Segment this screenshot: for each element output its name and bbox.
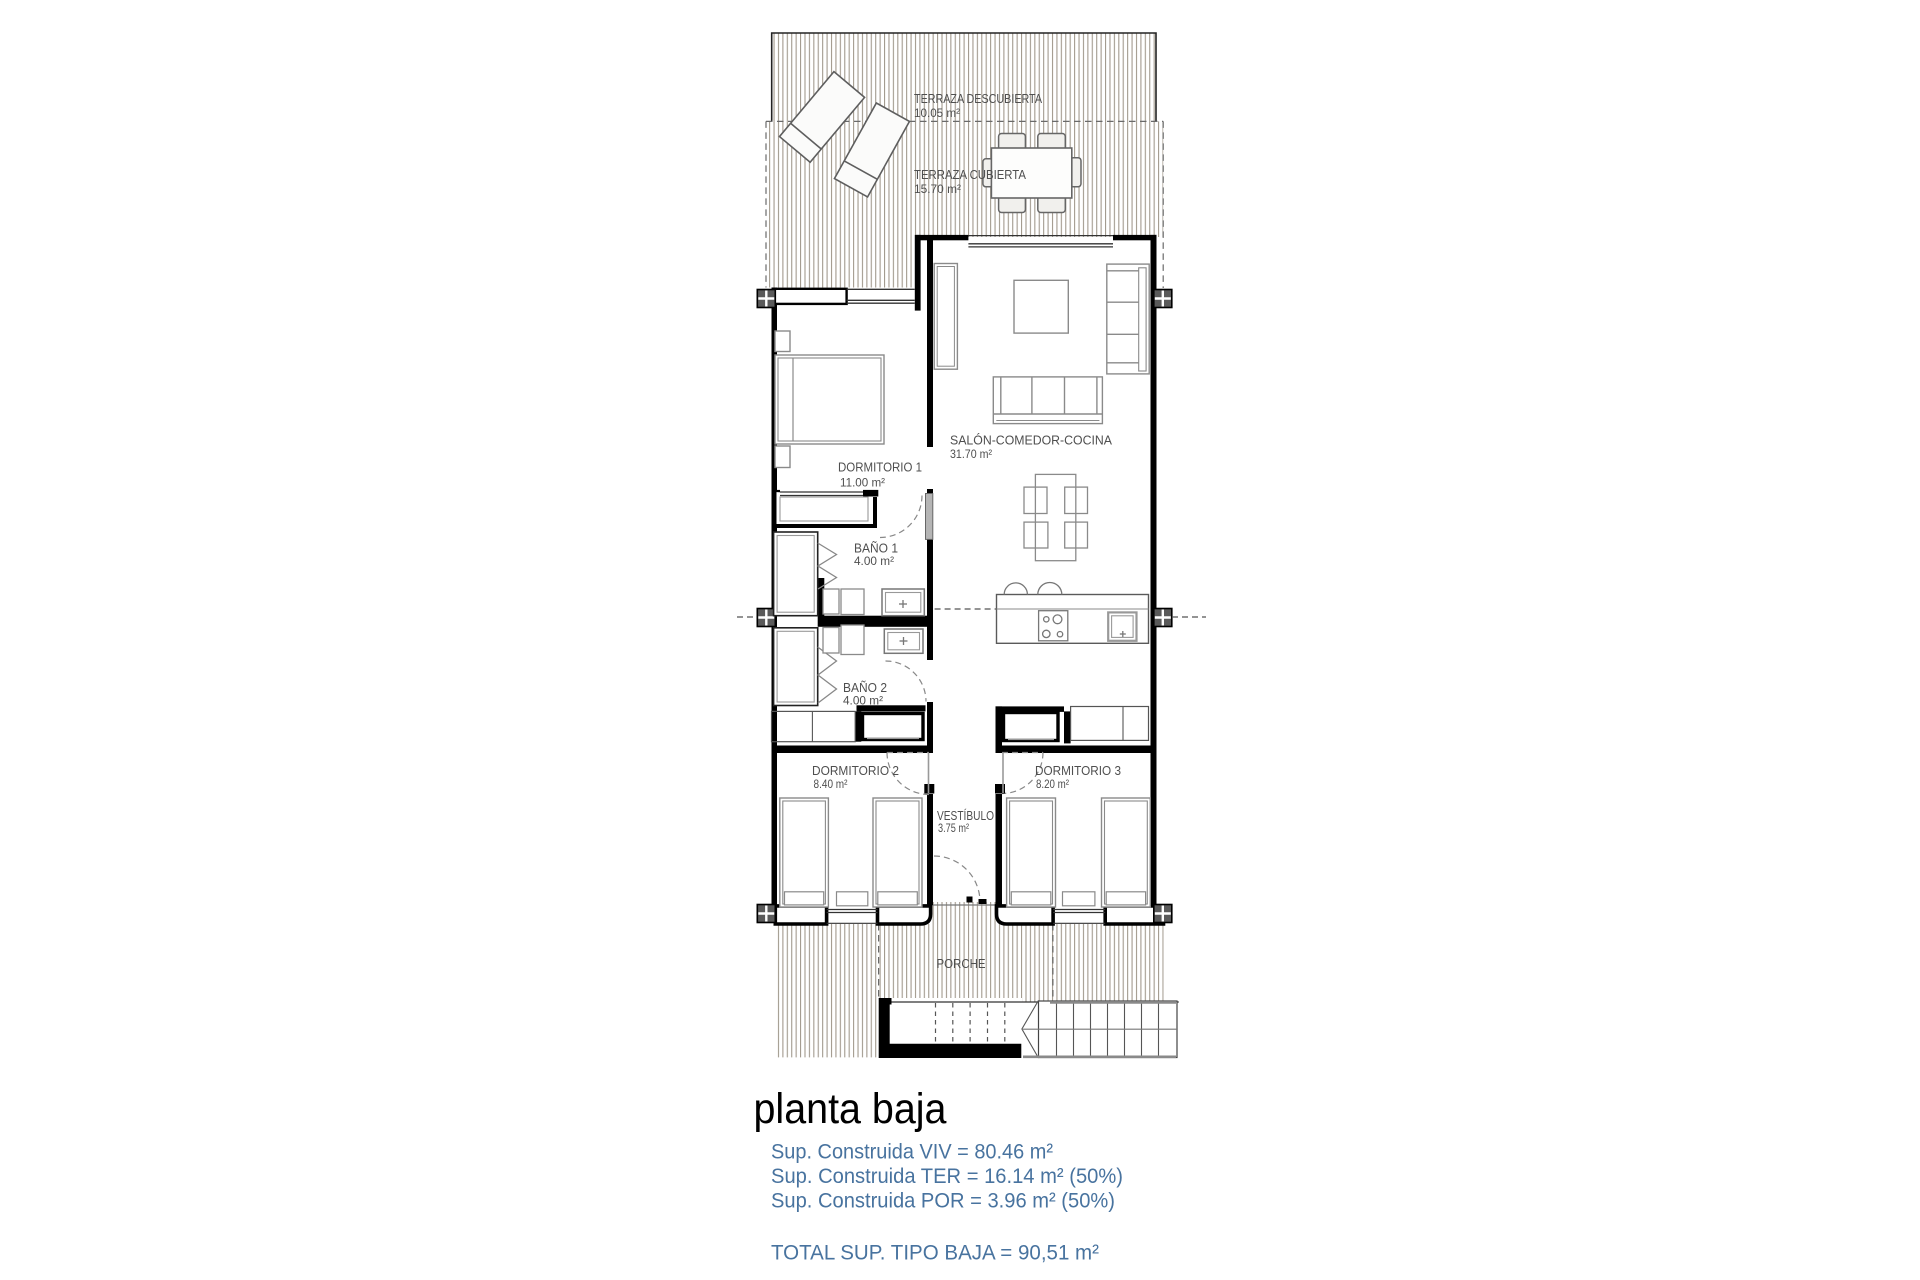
svg-text:4.00 m²: 4.00 m² [854,554,894,568]
svg-text:planta baja: planta baja [754,1086,947,1133]
svg-text:SALÓN-COMEDOR-COCINA: SALÓN-COMEDOR-COCINA [950,433,1112,448]
svg-text:8.20 m²: 8.20 m² [1036,777,1069,791]
svg-text:TERRAZA DESCUBIERTA: TERRAZA DESCUBIERTA [914,91,1042,106]
svg-text:DORMITORIO 1: DORMITORIO 1 [838,460,922,475]
svg-text:TERRAZA CUBIERTA: TERRAZA CUBIERTA [914,167,1026,182]
svg-text:Sup. Construida VIV = 80.46 m²: Sup. Construida VIV = 80.46 m² [771,1141,1053,1164]
svg-text:8.40 m²: 8.40 m² [814,777,848,791]
svg-text:DORMITORIO 3: DORMITORIO 3 [1035,763,1121,778]
svg-text:4.00 m²: 4.00 m² [843,694,883,708]
svg-text:10.05 m²: 10.05 m² [914,106,960,120]
svg-text:DORMITORIO 2: DORMITORIO 2 [812,763,899,778]
svg-text:31.70 m²: 31.70 m² [950,447,992,461]
svg-text:PORCHE: PORCHE [937,956,986,971]
svg-text:Sup. Construida POR = 3.96 m²: Sup. Construida POR = 3.96 m² (50%) [771,1190,1115,1213]
svg-text:15.70 m²: 15.70 m² [914,182,961,196]
svg-text:Sup. Construida TER = 16.14 m²: Sup. Construida TER = 16.14 m² (50%) [771,1165,1123,1188]
svg-text:3.75 m²: 3.75 m² [938,821,969,835]
svg-text:11.00 m²: 11.00 m² [840,476,885,490]
svg-text:TOTAL SUP. TIPO BAJA = 90,51 m: TOTAL SUP. TIPO BAJA = 90,51 m² [771,1242,1099,1265]
